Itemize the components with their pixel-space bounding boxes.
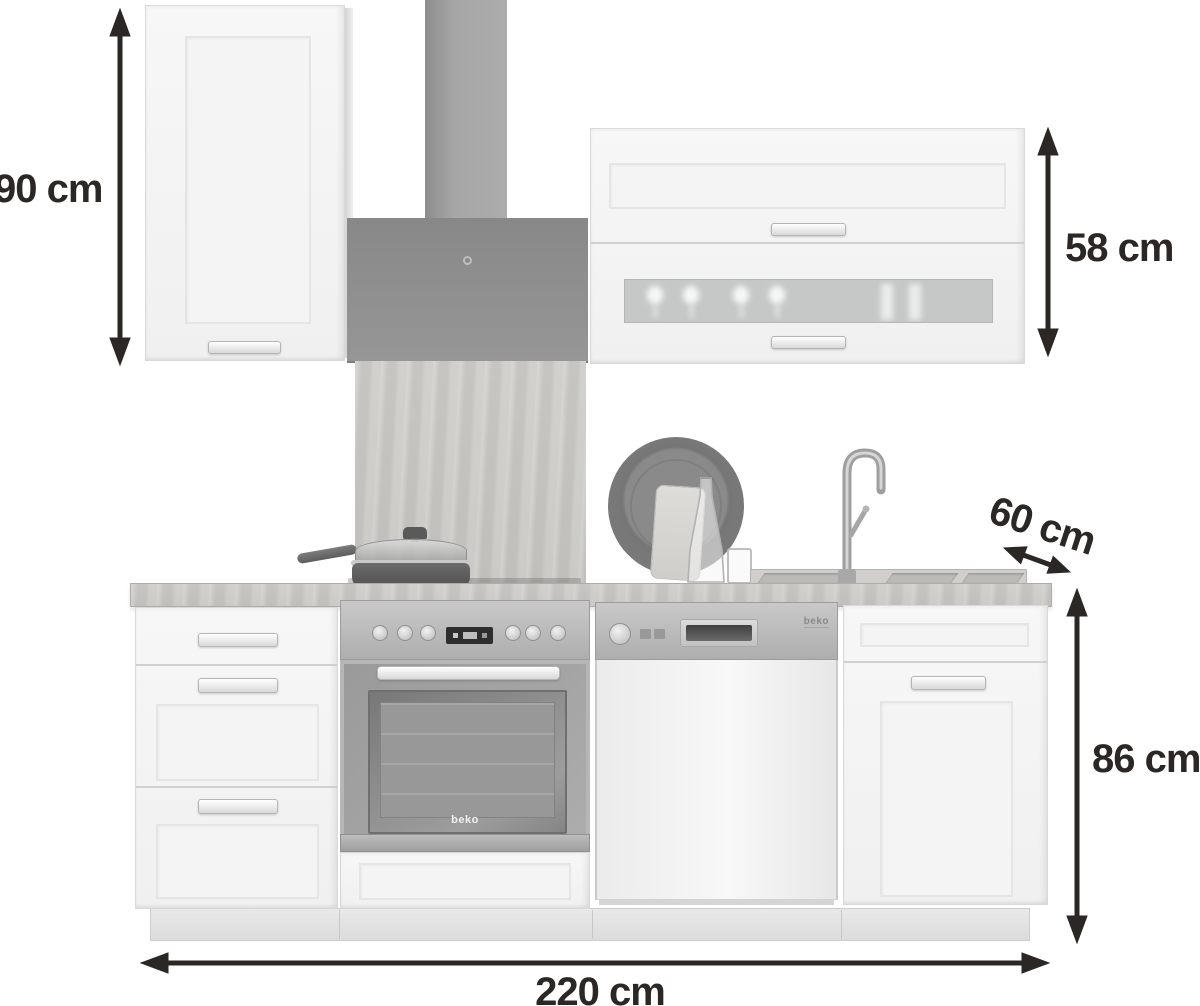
faucet: [815, 443, 897, 588]
dishwasher-handle-pocket: [680, 619, 758, 647]
dim-label-90cm: 90 cm: [0, 169, 102, 209]
plinth: [150, 908, 1030, 941]
drawer-3-panel: [156, 824, 319, 899]
drawer-2-handle: [198, 678, 278, 693]
flap-door-bottom-handle: [771, 336, 846, 349]
dishwasher-knob: [609, 623, 631, 645]
oven-knob: [397, 625, 413, 641]
oven-base-drawer: [340, 852, 590, 909]
dishwasher: beko: [595, 602, 838, 905]
oven-handle: [377, 666, 560, 680]
dishwasher-door: [595, 660, 838, 900]
flap-door-divider: [591, 242, 1024, 244]
dishwasher-buttons: [654, 629, 665, 639]
oven-display: [446, 627, 493, 644]
sink-bowl-right: [961, 573, 1024, 583]
oven-knob: [372, 625, 388, 641]
base-right-door-handle: [911, 676, 986, 690]
dim-label-220cm: 220 cm: [450, 972, 750, 1006]
base-cabinet-right: [843, 605, 1048, 905]
wall-cabinet-left: [145, 5, 345, 361]
dim-label-86cm: 86 cm: [1092, 739, 1200, 779]
kitchen-dimension-image: beko beko 90 cm: [0, 0, 1200, 1006]
oven-interior: [380, 702, 555, 818]
oven-knob: [550, 625, 566, 641]
flap-door-top-handle: [771, 223, 846, 236]
pan-handle: [297, 544, 358, 564]
drawer-2-panel: [156, 704, 319, 781]
height-arrow-58cm: [1033, 127, 1063, 357]
dishwasher-brand-logo: beko: [804, 616, 829, 628]
flap-door-top-panel: [609, 163, 1006, 209]
oven: beko: [340, 600, 590, 909]
wall-cabinet-left-panel: [185, 36, 311, 324]
worktop: [130, 583, 1052, 607]
base-drawer-unit: [135, 607, 338, 909]
oven-knob: [420, 625, 436, 641]
dim-label-58cm: 58 cm: [1065, 228, 1173, 268]
oven-window: [368, 690, 567, 834]
wall-cabinet-left-handle: [208, 341, 281, 354]
drinking-glass: [727, 548, 752, 584]
drawer-3-handle: [198, 799, 278, 814]
drawer-1-handle: [198, 633, 278, 647]
oven-brand-logo: beko: [340, 814, 590, 826]
glass-carafe: [684, 476, 728, 584]
oven-knob: [505, 625, 521, 641]
false-drawer-panel: [860, 623, 1029, 647]
base-right-door-panel: [880, 701, 1013, 897]
height-arrow-86cm: [1062, 588, 1092, 944]
dishwasher-buttons: [640, 629, 651, 639]
oven-knob: [525, 625, 541, 641]
height-arrow-90cm: [105, 8, 135, 366]
extractor-hood: [347, 218, 588, 363]
oven-bottom-strip: [340, 834, 590, 852]
flap-door-glass: [624, 279, 993, 323]
hood-light-icon: [463, 256, 472, 265]
hood-chimney: [425, 0, 507, 219]
wall-cabinet-right: [590, 128, 1025, 364]
oven-control-panel: [340, 600, 590, 660]
dishwasher-control-panel: beko: [595, 602, 838, 660]
